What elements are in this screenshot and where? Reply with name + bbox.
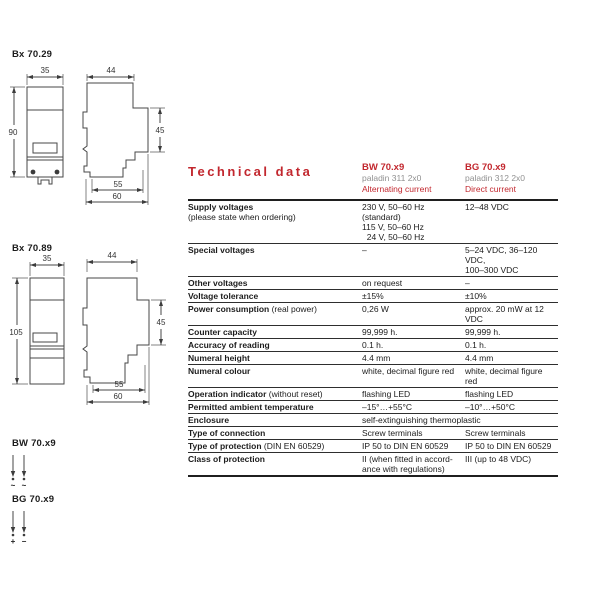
table-row-power-consumption: Power consumption (real power) 0,26 W ap… — [188, 303, 558, 326]
svg-text:60: 60 — [113, 192, 122, 201]
row-label-note: (without reset) — [266, 389, 322, 399]
row-value-bw: – — [362, 245, 465, 275]
table-row-ambient-temperature: Permitted ambient temperature –15°…+55°C… — [188, 401, 558, 414]
drawing-label-bx7089: Bx 70.89 — [12, 243, 52, 254]
wiring-symbol-bw-ac: ~ ~ — [10, 452, 46, 494]
model-name: BG 70.x9 — [465, 162, 558, 173]
row-value-bg: 99,999 h. — [465, 327, 558, 337]
front-width-dim: 35 — [27, 66, 63, 85]
row-value-bg: white, decimal figure red — [465, 366, 558, 386]
row-label-note: (DIN EN 60529) — [262, 441, 325, 451]
row-label: Counter capacity — [188, 327, 257, 337]
dimension-drawing-bx7089: 35 105 44 — [0, 255, 215, 413]
svg-text:55: 55 — [115, 380, 124, 389]
svg-text:60: 60 — [114, 392, 123, 401]
table-row-supply-voltages: Supply voltages(please state when orderi… — [188, 201, 558, 244]
row-value-bg: Screw terminals — [465, 428, 558, 438]
row-label: Other voltages — [188, 278, 248, 288]
svg-text:35: 35 — [41, 66, 50, 75]
row-value-bw: 99,999 h. — [362, 327, 465, 337]
svg-text:35: 35 — [43, 254, 52, 263]
dc-plus-terminal-mark: + — [11, 537, 16, 546]
table-row-voltage-tolerance: Voltage tolerance ±15% ±10% — [188, 290, 558, 303]
row-label: Supply voltages — [188, 202, 253, 212]
counter-window — [33, 333, 57, 342]
row-value-bg: approx. 20 mW at 12 VDC — [465, 304, 558, 324]
side-width-dim: 44 — [87, 251, 137, 272]
table-row-numeral-colour: Numeral colour white, decimal figure red… — [188, 365, 558, 388]
row-value-bg: ±10% — [465, 291, 558, 301]
front-width-dim: 35 — [30, 254, 64, 276]
drawing-label-bx7029: Bx 70.29 — [12, 49, 52, 60]
row-value-bw: 0,26 W — [362, 304, 465, 324]
base-inner-dim: 55 — [92, 170, 143, 193]
row-value-bg: 12–48 VDC — [465, 202, 558, 242]
table-row-accuracy-of-reading: Accuracy of reading 0.1 h. 0.1 h. — [188, 339, 558, 352]
table-row-other-voltages: Other voltages on request – — [188, 277, 558, 290]
row-value-both: self-extinguishing thermoplastic — [362, 415, 558, 425]
front-height-dim: 105 — [9, 278, 28, 384]
row-value-bw: 4.4 mm — [362, 353, 465, 363]
row-label: Permitted ambient temperature — [188, 402, 314, 412]
row-value-bw: flashing LED — [362, 389, 465, 399]
product-name: paladin 311 2x0 — [362, 173, 465, 184]
row-value-bw: 0.1 h. — [362, 340, 465, 350]
row-value-bw: II (when fitted in accord- ance with reg… — [362, 454, 465, 474]
column-header-bw: BW 70.x9 paladin 311 2x0 Alternating cur… — [362, 162, 465, 195]
row-label: Accuracy of reading — [188, 340, 270, 350]
row-value-bg: 5–24 VDC, 36–120 VDC, 100–300 VDC — [465, 245, 558, 275]
svg-text:90: 90 — [9, 128, 18, 137]
row-value-bg: – — [465, 278, 558, 288]
side-view-profile-bx7089 — [83, 278, 149, 383]
row-value-bg: 4.4 mm — [465, 353, 558, 363]
row-value-bw: IP 50 to DIN EN 60529 — [362, 441, 465, 451]
table-row-operation-indicator: Operation indicator (without reset) flas… — [188, 388, 558, 401]
row-value-bg: III (up to 48 VDC) — [465, 454, 558, 474]
front-view-bx7029 — [27, 87, 63, 184]
product-name: paladin 312 2x0 — [465, 173, 558, 184]
svg-text:44: 44 — [107, 66, 116, 75]
technical-data-table: Technical data BW 70.x9 paladin 311 2x0 … — [188, 162, 558, 477]
row-value-bw: white, decimal figure red — [362, 366, 465, 386]
base-outer-dim: 60 — [87, 347, 149, 405]
wiring-symbol-bg-dc: + − — [10, 508, 46, 550]
row-label: Enclosure — [188, 415, 229, 425]
front-view-bx7089 — [30, 278, 64, 384]
side-view-profile-bx7029 — [83, 83, 148, 177]
side-height-dim: 45 — [151, 300, 166, 345]
side-width-dim: 44 — [87, 66, 134, 81]
column-header-bg: BG 70.x9 paladin 312 2x0 Direct current — [465, 162, 558, 195]
table-row-counter-capacity: Counter capacity 99,999 h. 99,999 h. — [188, 326, 558, 339]
svg-text:105: 105 — [9, 328, 23, 337]
row-value-bw: on request — [362, 278, 465, 288]
table-row-enclosure: Enclosure self-extinguishing thermoplast… — [188, 414, 558, 427]
row-label: Numeral height — [188, 353, 250, 363]
din-clip — [38, 177, 52, 184]
screw-terminal-left — [31, 170, 36, 175]
row-label-note: (real power) — [269, 304, 317, 314]
table-row-numeral-height: Numeral height 4.4 mm 4.4 mm — [188, 352, 558, 365]
counter-window — [33, 143, 57, 153]
row-value-bg: IP 50 to DIN EN 60529 — [465, 441, 558, 451]
row-value-bg: flashing LED — [465, 389, 558, 399]
base-inner-dim: 55 — [93, 365, 145, 393]
svg-text:45: 45 — [156, 126, 165, 135]
table-title: Technical data — [188, 162, 362, 195]
svg-text:44: 44 — [108, 251, 117, 260]
side-height-dim: 45 — [150, 108, 165, 152]
row-label: Type of protection — [188, 441, 262, 451]
ac-terminal-mark-1: ~ — [11, 481, 16, 490]
row-value-bw: –15°…+55°C — [362, 402, 465, 412]
row-label: Operation indicator — [188, 389, 266, 399]
row-value-bg: –10°…+50°C — [465, 402, 558, 412]
table-row-special-voltages: Special voltages – 5–24 VDC, 36–120 VDC,… — [188, 244, 558, 277]
row-label-note: (please state when ordering) — [188, 212, 356, 222]
front-height-dim: 90 — [9, 87, 25, 177]
row-label: Special voltages — [188, 245, 255, 255]
ac-terminal-mark-2: ~ — [22, 481, 27, 490]
symbol-label-bw70x9: BW 70.x9 — [12, 438, 56, 449]
row-value-bw: Screw terminals — [362, 428, 465, 438]
row-label: Type of connection — [188, 428, 265, 438]
dimension-drawing-bx7029: 35 90 44 — [0, 62, 215, 214]
table-header: Technical data BW 70.x9 paladin 311 2x0 … — [188, 162, 558, 201]
current-type: Direct current — [465, 184, 558, 195]
current-type: Alternating current — [362, 184, 465, 195]
row-value-bw: ±15% — [362, 291, 465, 301]
row-label: Power consumption — [188, 304, 269, 314]
row-label: Numeral colour — [188, 366, 250, 376]
svg-text:45: 45 — [157, 318, 166, 327]
table-row-class-of-protection: Class of protection II (when fitted in a… — [188, 453, 558, 477]
dc-minus-terminal-mark: − — [22, 537, 27, 546]
row-label: Voltage tolerance — [188, 291, 258, 301]
datasheet-page: Bx 70.29 35 90 — [0, 0, 600, 600]
symbol-label-bg70x9: BG 70.x9 — [12, 494, 54, 505]
row-value-bg: 0.1 h. — [465, 340, 558, 350]
screw-terminal-right — [55, 170, 60, 175]
table-row-type-of-protection: Type of protection (DIN EN 60529) IP 50 … — [188, 440, 558, 453]
row-label: Class of protection — [188, 454, 265, 464]
table-row-type-of-connection: Type of connection Screw terminals Screw… — [188, 427, 558, 440]
row-value-bw: 230 V, 50–60 Hz (standard) 115 V, 50–60 … — [362, 202, 465, 242]
svg-text:55: 55 — [114, 180, 123, 189]
model-name: BW 70.x9 — [362, 162, 465, 173]
